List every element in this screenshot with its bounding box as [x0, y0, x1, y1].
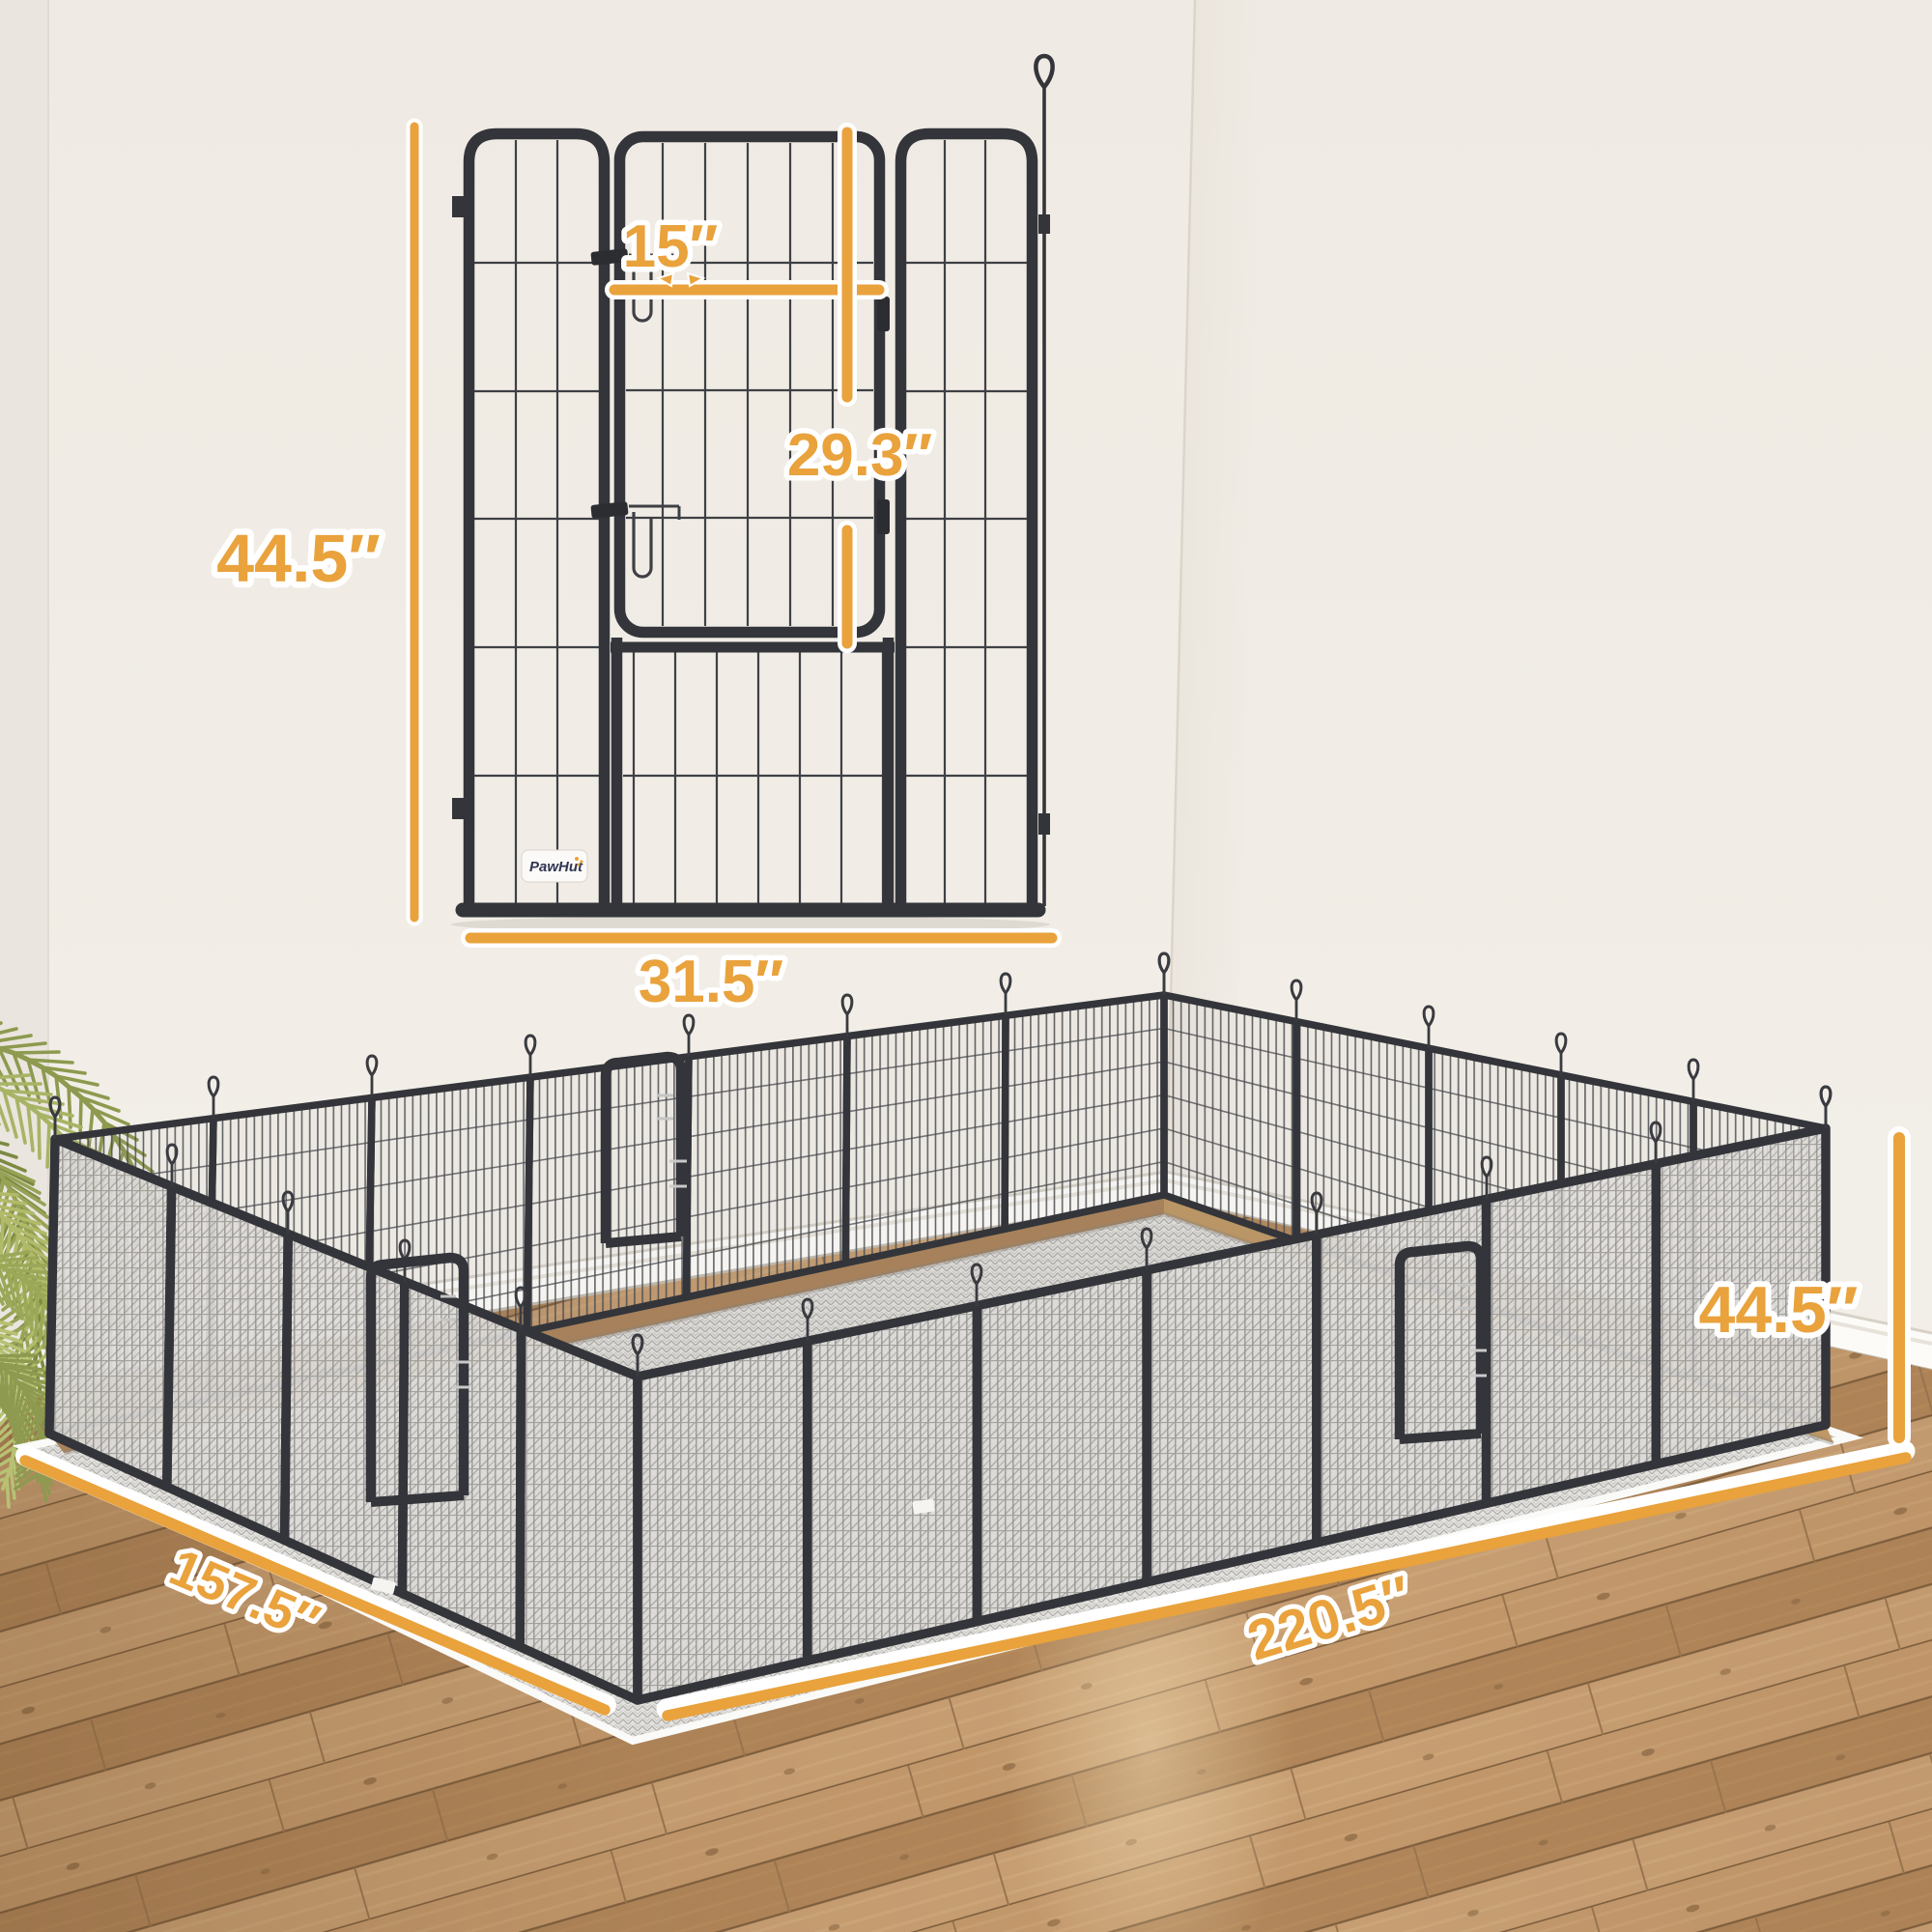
svg-text:31.5″: 31.5″ — [639, 949, 783, 1015]
svg-text:15″: 15″ — [623, 213, 719, 280]
svg-text:44.5″: 44.5″ — [1699, 1273, 1859, 1347]
svg-text:PawHut: PawHut — [529, 859, 583, 875]
svg-text:29.3″: 29.3″ — [787, 422, 932, 489]
svg-text:44.5″: 44.5″ — [216, 521, 381, 596]
